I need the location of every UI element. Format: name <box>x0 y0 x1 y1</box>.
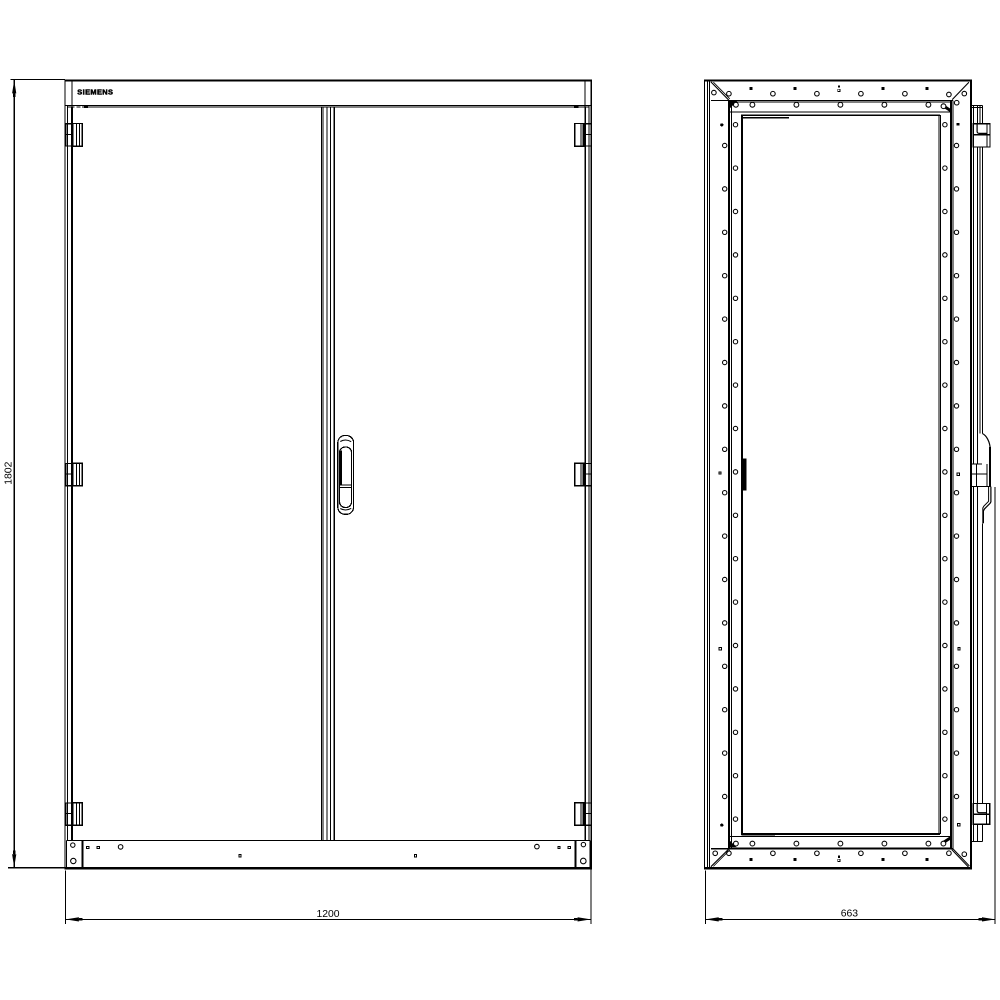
svg-text:1802: 1802 <box>4 461 15 484</box>
svg-text:1200: 1200 <box>316 909 339 920</box>
svg-text:SIEMENS: SIEMENS <box>77 87 113 96</box>
svg-text:663: 663 <box>841 909 859 920</box>
